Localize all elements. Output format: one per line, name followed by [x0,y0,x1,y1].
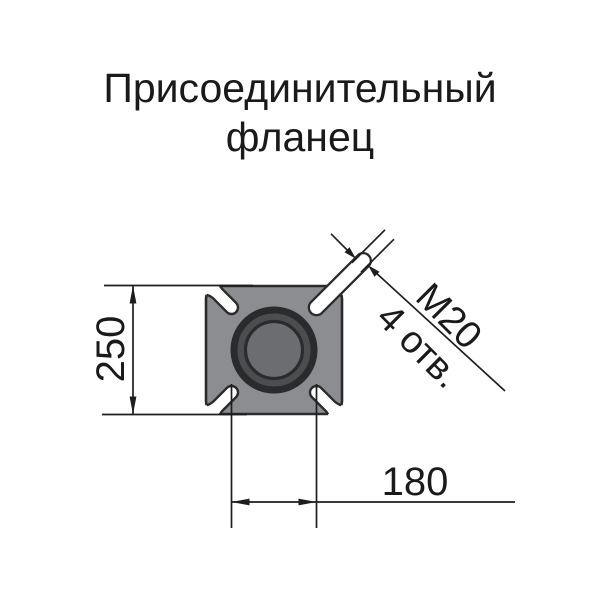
dim180-arrowhead-right [299,499,317,506]
technical-drawing-page: Присоединительный фланец М20 [0,0,600,600]
dim250-value: 250 [89,316,133,383]
dim250-arrowhead-bottom [130,397,137,415]
flange-drawing: Присоединительный фланец М20 [0,0,600,600]
dim180-value: 180 [382,460,449,504]
page-title-line1: Присоединительный [103,65,496,111]
dim180-arrowhead-left [232,499,250,506]
dim250-arrowhead-top [130,286,137,304]
page-title-line2: фланец [226,114,375,160]
center-bore-inner-ring [246,322,303,379]
